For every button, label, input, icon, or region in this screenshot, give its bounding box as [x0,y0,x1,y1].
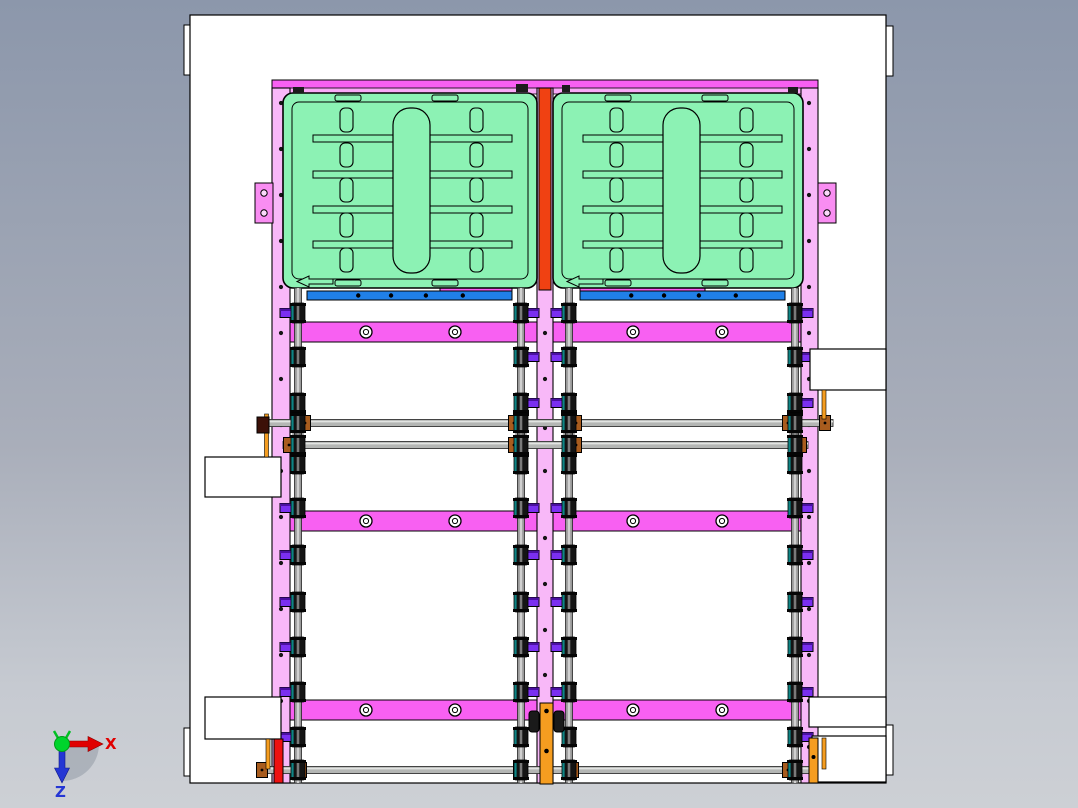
roller-groove [520,350,523,364]
roller-teal [788,416,790,430]
roller-flange [561,393,577,396]
roller-groove [568,595,571,609]
pin [822,738,826,769]
roller-flange [513,515,529,518]
tray-slot [340,248,353,272]
roller-flange [513,498,529,501]
roller-teal [514,457,516,471]
roller-flange [290,413,306,416]
sheet-tab [886,725,893,775]
roller-teal [788,396,790,410]
roller-flange [513,744,529,747]
white-cover [809,697,886,727]
roller-flange [513,471,529,474]
roller-flange [290,545,306,548]
roller-flange [561,410,577,413]
screw-dot [697,293,701,297]
roller-flange [787,777,803,780]
screw-dot [662,293,666,297]
roller-teal [788,350,790,364]
roller-flange [290,435,306,438]
pin [822,390,826,419]
rail-screw-dot [807,653,811,657]
roller-teal [788,685,790,699]
bracket-hole [261,190,267,196]
tray-slot [470,143,483,167]
roller-flange [513,452,529,455]
roller-teal [514,640,516,654]
rail-screw-dot [807,285,811,289]
roller-flange [513,347,529,350]
roller-groove [297,730,300,744]
roller-flange [513,320,529,323]
post-screw [544,709,549,714]
tray-slot [610,213,623,237]
roller-teal [562,457,564,471]
roller-flange [290,777,306,780]
blue-clamp-bar [307,291,512,300]
roller-teal [514,685,516,699]
rail-screw-dot [279,607,283,611]
roller-flange [513,562,529,565]
axis-triad: X Z [54,731,117,801]
roller-groove [794,730,797,744]
roller-flange [290,609,306,612]
roller-flange [290,320,306,323]
roller-teal [291,457,293,471]
rail-screw-dot [543,673,547,677]
rail-screw-dot [543,469,547,473]
roller-teal [514,730,516,744]
tray-slot [470,178,483,202]
roller-flange [561,498,577,501]
beam-hole [716,704,728,716]
z-axis-label: Z [55,783,66,801]
roller-flange [561,777,577,780]
roller-groove [520,306,523,320]
roller-teal [291,501,293,515]
tray-notch [335,95,361,101]
roller-flange [513,393,529,396]
roller-flange [787,413,803,416]
roller-flange [561,303,577,306]
tray [283,93,537,288]
post-screw [812,755,816,759]
roller-groove [520,457,523,471]
white-cover [205,457,281,497]
roller-teal [514,501,516,515]
roller-teal [514,763,516,777]
side-bracket [255,183,273,223]
tray-slot [740,178,753,202]
beam-hole [627,515,639,527]
roller-flange [290,727,306,730]
roller-groove [568,457,571,471]
tray-slot [740,213,753,237]
roller-flange [561,430,577,433]
roller-teal [562,396,564,410]
roller-groove [297,763,300,777]
roller-teal [514,548,516,562]
pin [266,739,270,769]
tray-notch [335,280,361,286]
roller-groove [520,548,523,562]
roller-groove [794,595,797,609]
roller-flange [787,699,803,702]
roller-teal [562,548,564,562]
right-orange-post [809,738,818,783]
bracket-hole [824,210,830,216]
roller-flange [561,471,577,474]
roller-flange [513,364,529,367]
collar-dot [288,444,291,447]
roller-flange [513,682,529,685]
roller-groove [794,763,797,777]
roller-groove [297,548,300,562]
roller-groove [568,396,571,410]
rail-screw-dot [279,331,283,335]
white-cover [810,349,886,390]
beam-hole [360,515,372,527]
tray-slot [340,108,353,132]
roller-groove [520,396,523,410]
roller-flange [290,744,306,747]
roller-flange [290,393,306,396]
tray-slot [610,178,623,202]
roller-flange [290,760,306,763]
rail-screw-dot [807,239,811,243]
tray-slot [740,108,753,132]
roller-groove [297,416,300,430]
roller-flange [513,413,529,416]
screw-dot [629,293,633,297]
tray-notch [432,280,458,286]
roller-flange [290,637,306,640]
roller-teal [562,595,564,609]
rail-screw-dot [279,653,283,657]
side-bracket [818,183,836,223]
roller-groove [568,350,571,364]
cad-canvas[interactable]: X Z [0,0,1078,808]
roller-flange [561,347,577,350]
roller-groove [520,501,523,515]
beam-hole [449,704,461,716]
roller-groove [520,763,523,777]
roller-flange [561,654,577,657]
roller-teal [562,685,564,699]
tray-slot [340,143,353,167]
x-axis-label: X [105,735,117,753]
roller-groove [794,640,797,654]
roller-flange [513,777,529,780]
beam-hole [716,326,728,338]
roller-flange [290,515,306,518]
roller-teal [788,595,790,609]
screw-dot [734,293,738,297]
assembly-drawing [184,15,893,784]
bracket-hole [261,210,267,216]
roller-teal [291,350,293,364]
roller-teal [291,730,293,744]
roller-flange [787,760,803,763]
roller-flange [787,303,803,306]
roller-groove [297,438,300,452]
roller-teal [514,595,516,609]
clamp-mark [293,87,304,93]
rail-screw-dot [279,515,283,519]
roller-flange [561,609,577,612]
post-screw [544,749,549,754]
roller-groove [297,396,300,410]
roller-teal [788,548,790,562]
tray [553,93,803,288]
left-red-post [274,739,283,783]
rail-screw-dot [807,331,811,335]
roller-teal [291,416,293,430]
roller-flange [561,515,577,518]
beam-hole [627,704,639,716]
roller-flange [787,545,803,548]
screw-dot [424,293,428,297]
roller-flange [561,364,577,367]
roller-groove [568,685,571,699]
coupler [554,711,564,732]
coupler [529,711,539,732]
roller-flange [513,410,529,413]
roller-flange [290,699,306,702]
collar-dot [261,769,264,772]
beam-hole [449,515,461,527]
roller-flange [290,347,306,350]
roller-flange [787,320,803,323]
roller-teal [514,350,516,364]
roller-flange [290,592,306,595]
beam-hole [360,704,372,716]
roller-teal [562,640,564,654]
roller-flange [787,498,803,501]
roller-teal [514,438,516,452]
roller-groove [794,685,797,699]
rail-screw-dot [279,377,283,381]
rail-screw-dot [279,561,283,565]
roller-teal [562,350,564,364]
roller-flange [513,727,529,730]
roller-flange [787,654,803,657]
roller-flange [561,413,577,416]
roller-groove [297,350,300,364]
center-red-bar [539,88,551,290]
roller-teal [562,763,564,777]
roller-flange [787,682,803,685]
roller-groove [297,501,300,515]
roller-flange [787,637,803,640]
rail-screw-dot [807,607,811,611]
roller-flange [513,654,529,657]
rail-screw-dot [543,331,547,335]
roller-flange [513,609,529,612]
roller-groove [297,640,300,654]
roller-flange [513,435,529,438]
roller-teal [562,306,564,320]
roller-flange [290,303,306,306]
roller-teal [788,640,790,654]
roller-teal [514,396,516,410]
tray-slot [610,248,623,272]
roller-flange [513,637,529,640]
roller-flange [787,727,803,730]
roller-flange [561,545,577,548]
tray-slot [340,178,353,202]
roller-flange [561,452,577,455]
roller-flange [561,562,577,565]
tray-slot [740,143,753,167]
clamp-mark [788,87,798,93]
roller-groove [568,763,571,777]
roller-flange [787,430,803,433]
bracket-hole [824,190,830,196]
roller-flange [290,410,306,413]
tray-center-slot [663,108,700,273]
screw-dot [356,293,360,297]
tray-slot [610,108,623,132]
roller-flange [561,320,577,323]
rail-screw-dot [279,285,283,289]
screw-dot [461,293,465,297]
screw-dot [389,293,393,297]
roller-flange [290,654,306,657]
roller-flange [787,347,803,350]
roller-teal [562,501,564,515]
rail-screw-dot [543,536,547,540]
roller-flange [290,452,306,455]
roller-flange [787,435,803,438]
rail-screw-dot [807,515,811,519]
roller-flange [290,682,306,685]
roller-flange [787,515,803,518]
roller-teal [291,640,293,654]
roller-teal [562,416,564,430]
roller-teal [788,730,790,744]
shaft-highlight [257,421,833,423]
white-cover [205,697,281,739]
roller-groove [297,595,300,609]
roller-teal [788,306,790,320]
roller-groove [794,457,797,471]
beam-hole [360,326,372,338]
tray-notch [702,95,728,101]
shaft-highlight [283,443,808,445]
end-flange [257,417,269,433]
clamp-mark [562,85,570,92]
roller-teal [291,763,293,777]
roller-teal [291,438,293,452]
roller-teal [514,416,516,430]
rail-screw-dot [807,469,811,473]
tray-notch [605,280,631,286]
roller-groove [520,595,523,609]
beam-hole [627,326,639,338]
roller-flange [787,609,803,612]
roller-flange [513,545,529,548]
clamp-mark [516,84,528,92]
roller-teal [291,306,293,320]
tray-notch [702,280,728,286]
roller-flange [787,393,803,396]
roller-groove [568,438,571,452]
roller-teal [788,457,790,471]
roller-teal [788,763,790,777]
roller-flange [290,430,306,433]
roller-teal [291,396,293,410]
roller-flange [513,592,529,595]
roller-groove [794,548,797,562]
roller-teal [291,685,293,699]
roller-flange [787,452,803,455]
roller-flange [561,682,577,685]
roller-flange [513,760,529,763]
roller-groove [568,730,571,744]
roller-groove [297,685,300,699]
roller-groove [794,501,797,515]
y-axis-ball [55,737,70,752]
roller-flange [787,592,803,595]
rail-screw-dot [807,101,811,105]
roller-flange [290,562,306,565]
tray-slot [470,213,483,237]
roller-groove [520,640,523,654]
roller-groove [794,350,797,364]
tray-slot [470,248,483,272]
rail-screw-dot [807,193,811,197]
roller-groove [568,306,571,320]
center-post [540,703,553,784]
sheet-tab [886,26,893,76]
rail-screw-dot [807,147,811,151]
roller-flange [787,471,803,474]
roller-groove [568,640,571,654]
cad-viewport[interactable]: X Z [0,0,1078,808]
roller-groove [794,396,797,410]
roller-flange [561,760,577,763]
roller-groove [794,416,797,430]
roller-flange [561,637,577,640]
roller-teal [562,438,564,452]
tray-notch [432,95,458,101]
roller-flange [561,592,577,595]
roller-groove [520,685,523,699]
roller-flange [513,303,529,306]
rail-screw-dot [807,561,811,565]
roller-flange [787,410,803,413]
collar-dot [824,422,827,425]
roller-groove [520,416,523,430]
tray-slot [610,143,623,167]
shaft [257,420,833,427]
roller-flange [561,435,577,438]
beam-hole [716,515,728,527]
roller-flange [787,562,803,565]
roller-flange [290,364,306,367]
roller-groove [297,457,300,471]
roller-groove [520,438,523,452]
roller-teal [291,548,293,562]
roller-groove [794,306,797,320]
roller-flange [787,364,803,367]
roller-teal [514,306,516,320]
roller-flange [290,498,306,501]
rail-screw-dot [543,377,547,381]
tray-notch [605,95,631,101]
